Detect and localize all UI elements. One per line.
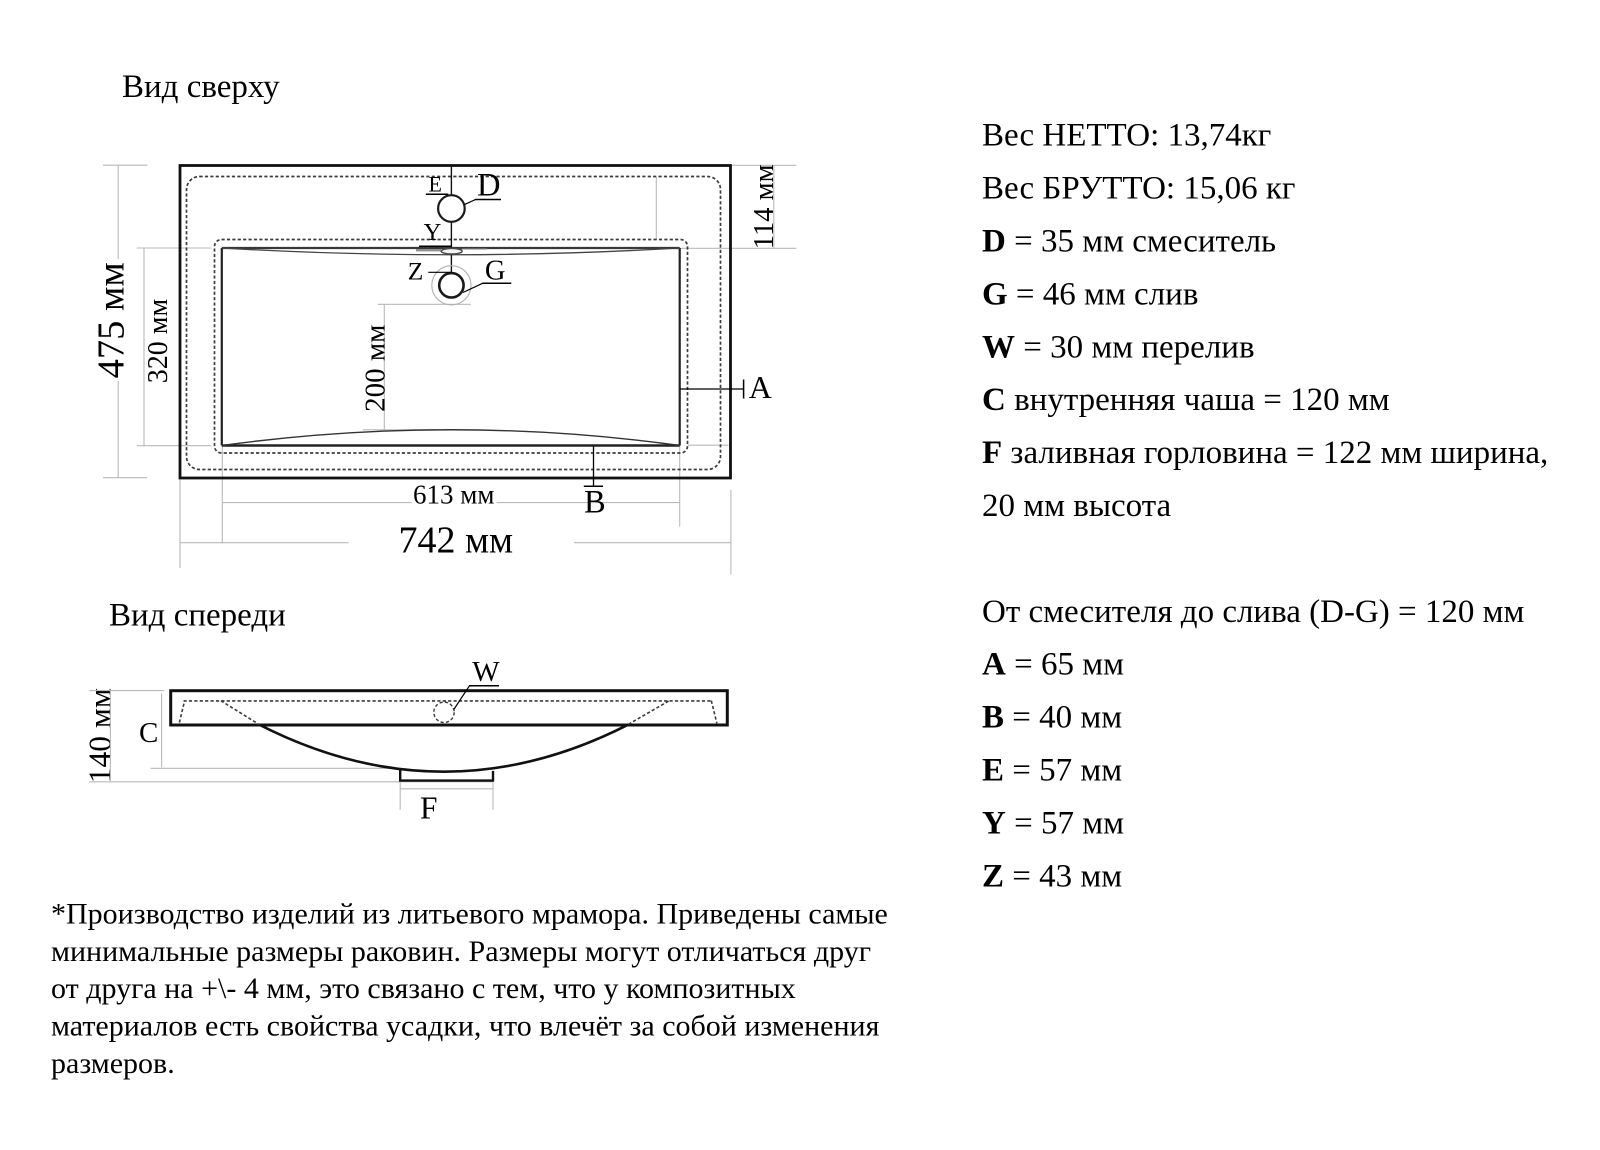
svg-text:E = 57 мм: E = 57 мм bbox=[982, 753, 1122, 789]
svg-text:613 мм: 613 мм bbox=[413, 479, 494, 509]
svg-text:Вид спереди: Вид спереди bbox=[109, 598, 286, 634]
svg-text:минимальные размеры раковин. Р: минимальные размеры раковин. Размеры мог… bbox=[51, 935, 871, 968]
svg-text:размеров.: размеров. bbox=[51, 1047, 175, 1080]
svg-text:742 мм: 742 мм bbox=[399, 520, 514, 562]
svg-text:20 мм высота: 20 мм высота bbox=[982, 488, 1172, 524]
svg-text:Вид сверху: Вид сверху bbox=[122, 69, 280, 105]
svg-text:Y: Y bbox=[424, 219, 442, 246]
svg-text:320 мм: 320 мм bbox=[143, 299, 174, 384]
svg-text:От смесителя до слива (D-G) =: От смесителя до слива (D-G) = 120 мм bbox=[982, 594, 1525, 630]
svg-text:A = 65 мм: A = 65 мм bbox=[982, 647, 1124, 683]
svg-text:материалов есть свойства усадк: материалов есть свойства усадки, что вле… bbox=[51, 1010, 880, 1043]
svg-text:114 мм: 114 мм bbox=[749, 164, 780, 249]
svg-text:D = 35 мм смеситель: D = 35 мм смеситель bbox=[982, 224, 1276, 260]
svg-text:Вес БРУТТО: 15,06 кг: Вес БРУТТО: 15,06 кг bbox=[982, 171, 1295, 207]
svg-text:475 мм: 475 мм bbox=[90, 262, 132, 378]
svg-text:B: B bbox=[584, 485, 606, 521]
svg-text:*Производство изделий из литье: *Производство изделий из литьевого мрамо… bbox=[51, 897, 888, 930]
svg-text:G: G bbox=[485, 256, 506, 287]
svg-text:140 мм: 140 мм bbox=[83, 688, 118, 783]
svg-text:W: W bbox=[472, 656, 500, 688]
svg-text:от друга на +\- 4 мм, это связ: от друга на +\- 4 мм, это связано с тем,… bbox=[51, 972, 796, 1005]
svg-text:W = 30 мм перелив: W = 30 мм перелив bbox=[982, 329, 1255, 365]
svg-text:G = 46 мм слив: G = 46 мм слив bbox=[982, 276, 1198, 312]
svg-text:Y = 57 мм: Y = 57 мм bbox=[982, 805, 1124, 841]
svg-text:A: A bbox=[749, 369, 772, 405]
svg-text:Z: Z bbox=[408, 257, 424, 286]
svg-text:F заливная горловина = 122 мм: F заливная горловина = 122 мм ширина, bbox=[982, 435, 1548, 471]
svg-text:E: E bbox=[429, 171, 442, 196]
svg-text:200 мм: 200 мм bbox=[359, 324, 391, 411]
svg-text:C внутренняя чаша = 120 мм: C внутренняя чаша = 120 мм bbox=[982, 382, 1390, 418]
svg-text:B = 40 мм: B = 40 мм bbox=[982, 700, 1122, 736]
svg-text:F: F bbox=[420, 790, 438, 825]
svg-text:Вес НЕТТО: 13,74кг: Вес НЕТТО: 13,74кг bbox=[982, 118, 1271, 154]
svg-text:D: D bbox=[477, 168, 500, 204]
svg-text:Z = 43 мм: Z = 43 мм bbox=[982, 858, 1122, 894]
svg-text:C: C bbox=[139, 717, 158, 749]
